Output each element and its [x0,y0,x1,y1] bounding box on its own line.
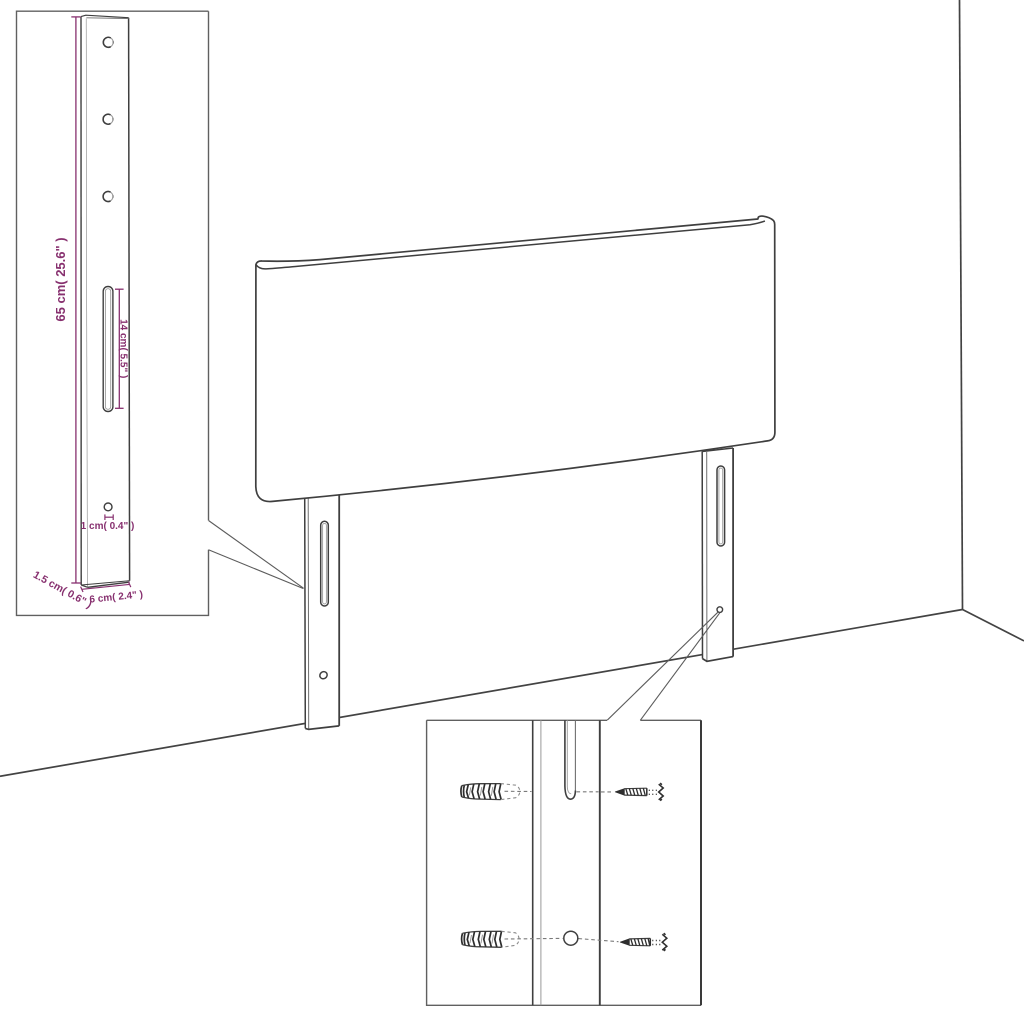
svg-text:65 cm( 25.6" ): 65 cm( 25.6" ) [53,237,68,321]
svg-text:1 cm( 0.4" ): 1 cm( 0.4" ) [81,521,135,532]
svg-text:14 cm( 5.5" ): 14 cm( 5.5" ) [118,319,129,378]
